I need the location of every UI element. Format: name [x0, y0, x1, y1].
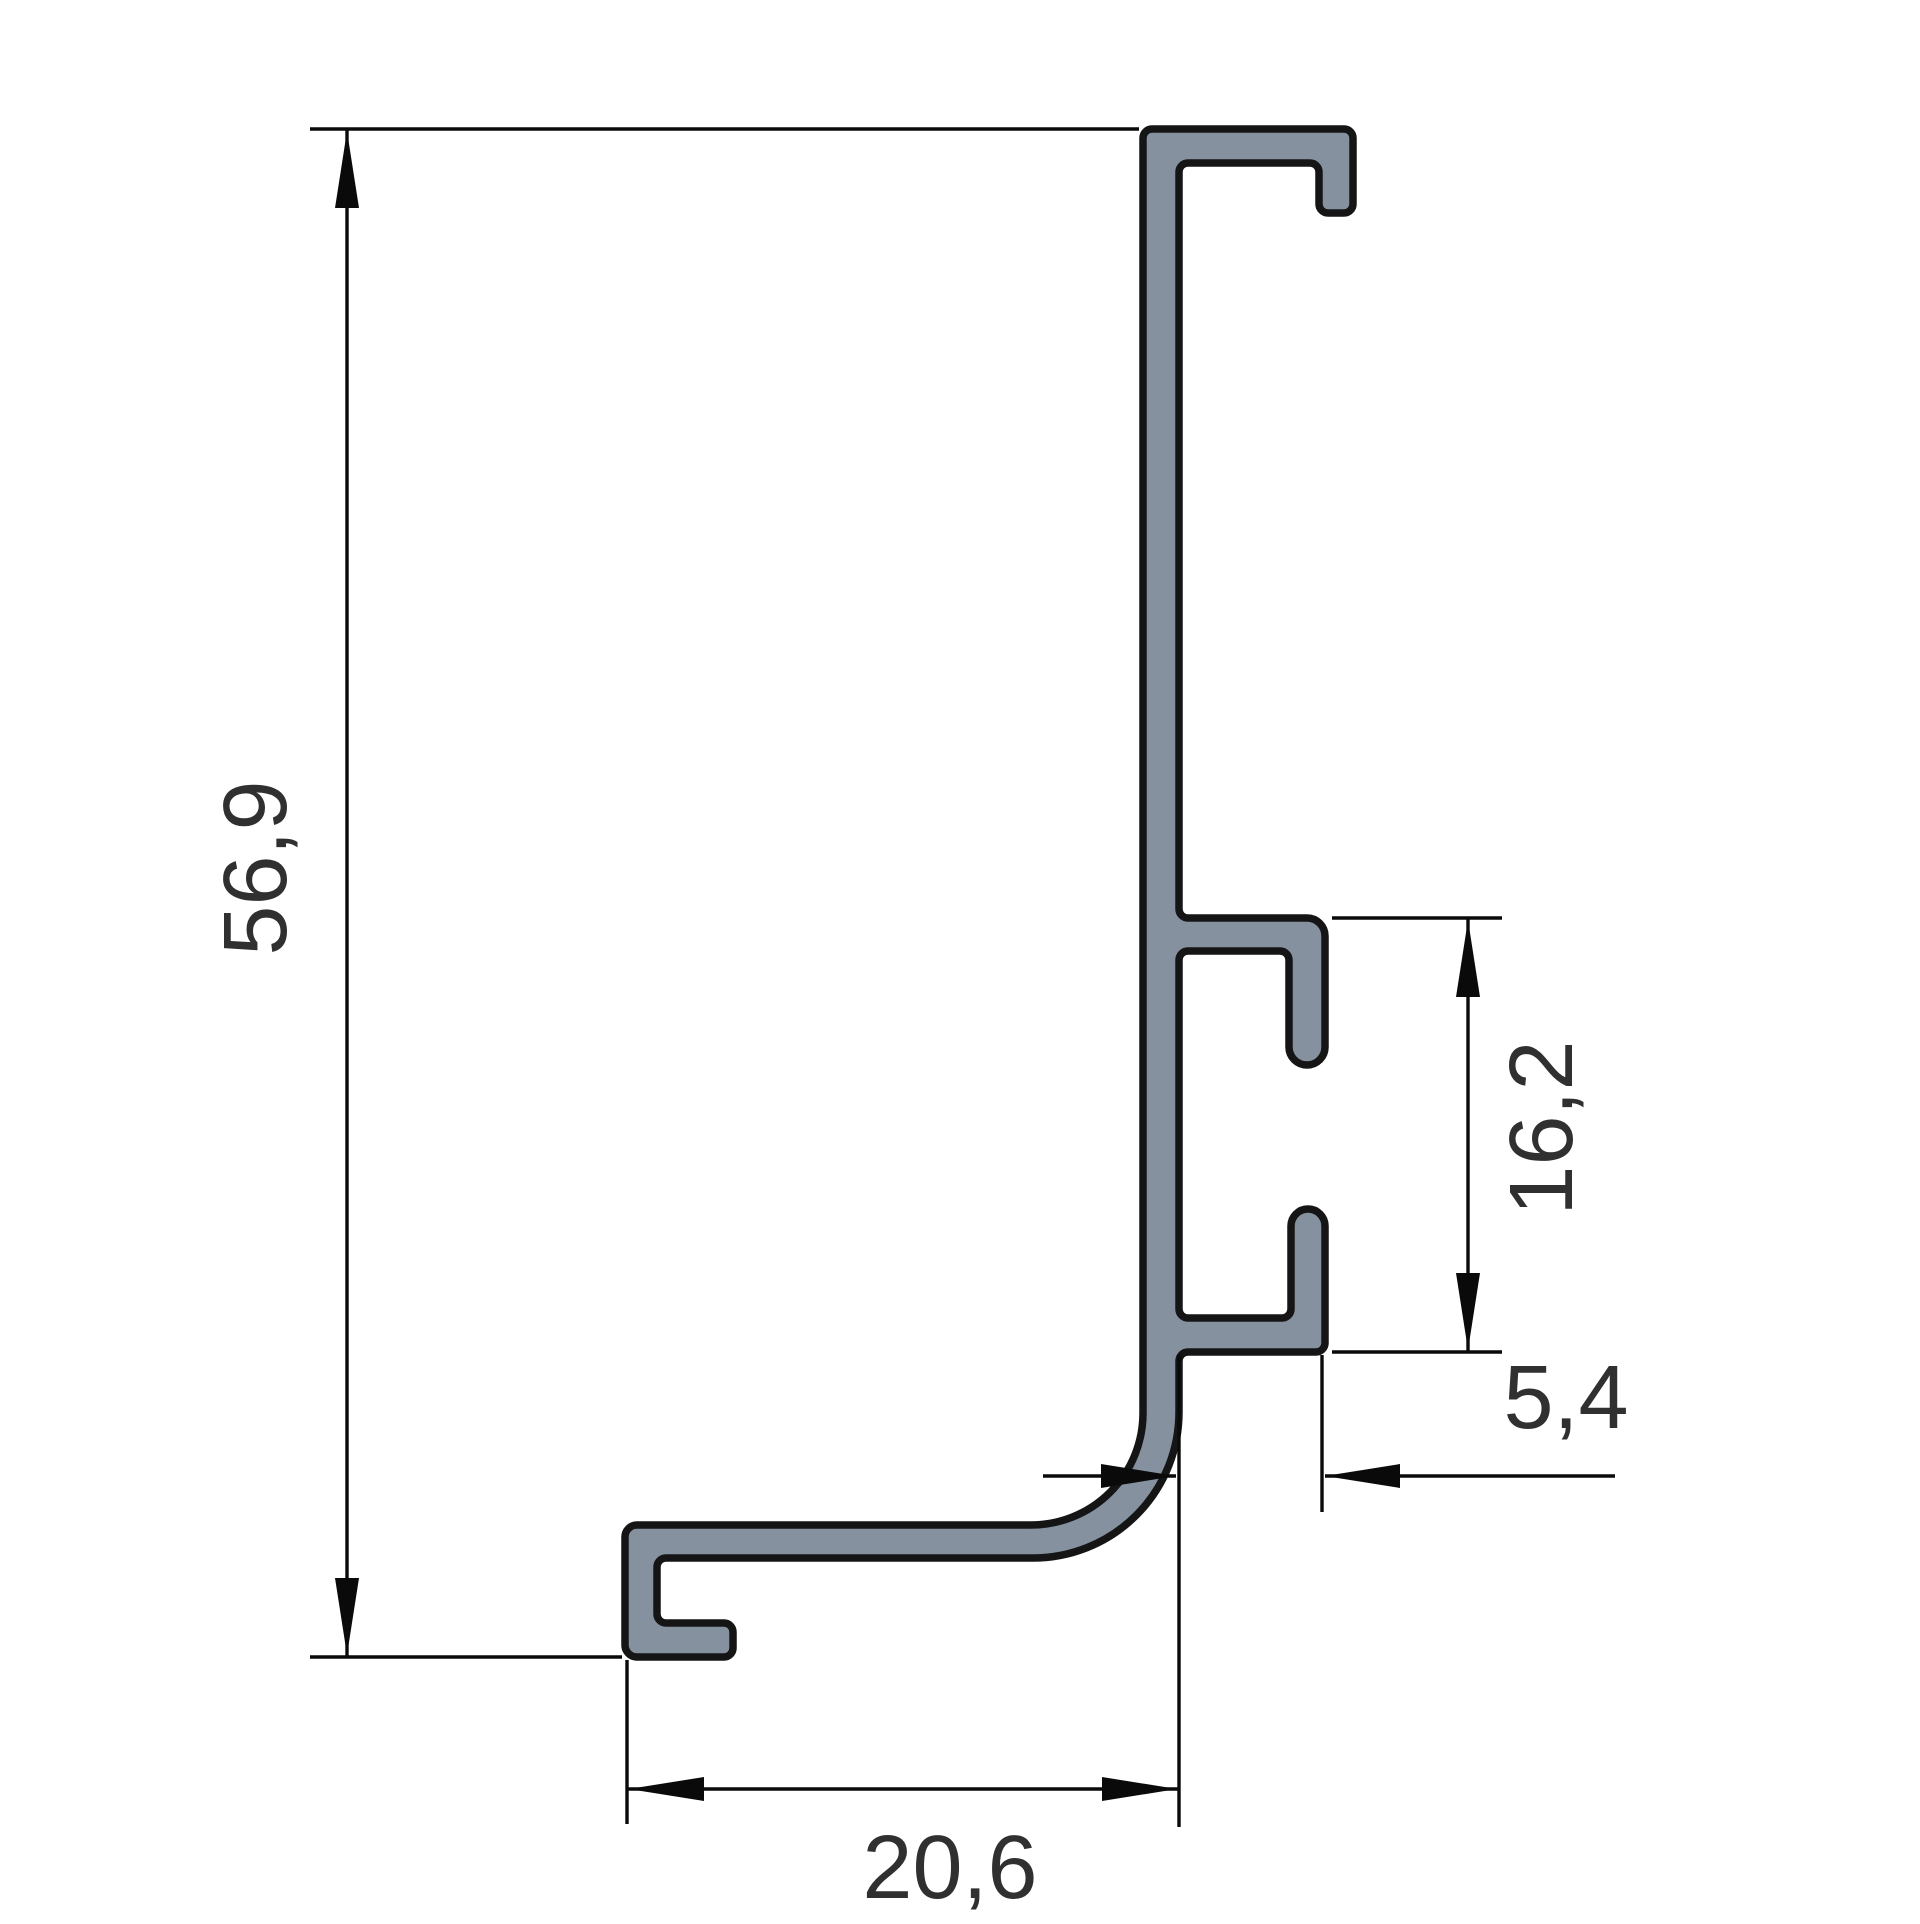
dimension-height: 56,9	[206, 129, 1139, 1657]
height-dimension-label: 56,9	[206, 780, 306, 955]
height-arrow-up	[335, 131, 359, 208]
slot-dimension-label: 16,2	[1492, 1040, 1592, 1215]
drawing-canvas: 56,9 16,2 5,4 20,6	[0, 0, 1920, 1924]
profile	[625, 129, 1353, 1657]
offset-dimension-label: 5,4	[1503, 1348, 1628, 1448]
slot-arrow-up	[1456, 920, 1480, 997]
width-dimension-label: 20,6	[862, 1818, 1037, 1918]
offset-arrow-left	[1325, 1464, 1400, 1488]
slot-arrow-down	[1456, 1273, 1480, 1350]
height-arrow-down	[335, 1578, 359, 1655]
width-arrow-left	[629, 1777, 704, 1801]
profile-drawing: 56,9 16,2 5,4 20,6	[0, 0, 1920, 1924]
width-arrow-right	[1102, 1777, 1177, 1801]
profile-outline	[625, 129, 1353, 1657]
dimension-slot: 16,2	[1332, 918, 1592, 1352]
